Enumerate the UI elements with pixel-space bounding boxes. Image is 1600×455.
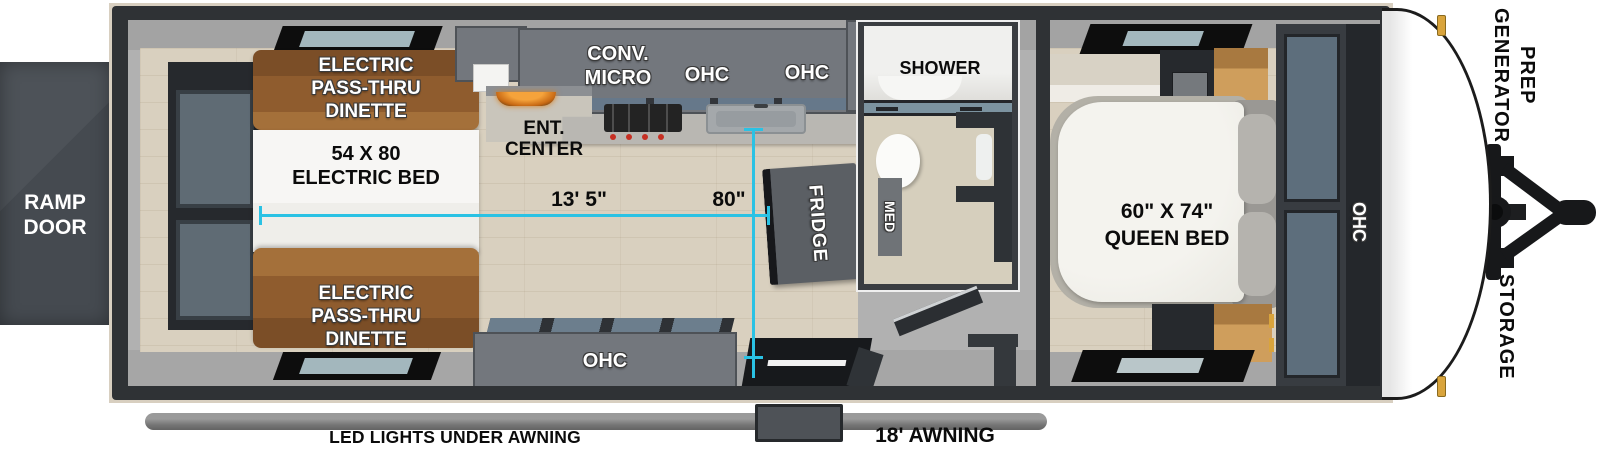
conv-micro-label: CONV. MICRO (570, 42, 666, 90)
ramp-interior-panel (168, 62, 262, 330)
wardrobe: OHC (1276, 24, 1380, 386)
storage-label: STORAGE (1494, 262, 1517, 392)
bathroom: SHOWER MED (856, 20, 1020, 292)
ramp-door-label: RAMP DOOR (0, 190, 110, 240)
med-label: MED (882, 201, 898, 232)
led-lights-label: LED LIGHTS UNDER AWNING (280, 427, 630, 448)
ohc-right-label: OHC (772, 62, 842, 85)
entry-wall-column (994, 334, 1016, 386)
headboard-wall (1050, 54, 1166, 102)
ramp-door: RAMP DOOR (0, 62, 110, 325)
ramp-window-top (176, 90, 254, 208)
dim-length-label: 13' 5" (529, 188, 629, 212)
vanity-counter-mid (956, 186, 1012, 202)
ent-center-label: ENT. CENTER (482, 118, 606, 160)
dim-width-label: 80" (699, 188, 759, 212)
med-cabinet: MED (878, 178, 902, 256)
wardrobe-glass-bottom (1284, 210, 1340, 378)
dinette-top-label: ELECTRIC PASS-THRU DINETTE (253, 54, 479, 123)
ohc-left-label: OHC (672, 64, 742, 87)
shower-pan (878, 76, 962, 100)
entry-step (755, 404, 843, 442)
ramp-window-bottom (176, 220, 254, 320)
dim-width-line (752, 130, 755, 378)
dim-length-tick-right (767, 206, 770, 225)
cap-latch-top (1437, 15, 1446, 36)
ohc-bottom-label: OHC (583, 350, 627, 373)
dinette-bottom-label: ELECTRIC PASS-THRU DINETTE (253, 282, 479, 351)
generator-prep-label: GENERATOR PREP (1488, 0, 1540, 150)
fireplace-glow (496, 92, 556, 106)
trailer-interior: ELECTRIC PASS-THRU DINETTE 54 X 80 ELECT… (128, 20, 1380, 386)
pillow-top (1238, 114, 1276, 204)
dim-length-line (261, 214, 770, 217)
cap-latch-bottom (1437, 376, 1446, 397)
entry-open-door (893, 286, 983, 336)
fridge-label: FRIDGE (803, 184, 830, 263)
stove (604, 104, 682, 132)
wardrobe-glass-top (1284, 34, 1340, 202)
rear-bottom-skylight (273, 352, 441, 380)
rear-top-skylight (273, 26, 442, 52)
dim-width-tick-top (744, 128, 763, 131)
dim-width-tick-bottom (744, 356, 763, 359)
wardrobe-ohc-label: OHC (1348, 182, 1369, 262)
floorplan: RAMP DOOR ELECTRIC PASS-THRU DINETTE (0, 0, 1600, 455)
bedroom-floor-skylight (1071, 350, 1255, 382)
front-cap (1382, 8, 1492, 400)
queen-bed-label: 60" X 74" QUEEN BED (1072, 198, 1262, 252)
stove-knobs (610, 134, 676, 142)
fridge: FRIDGE (762, 163, 864, 285)
vanity-sink (976, 134, 992, 180)
electric-bed-label: 54 X 80 ELECTRIC BED (253, 142, 479, 190)
bedroom-wall (1036, 20, 1050, 386)
shower-label: SHOWER (866, 58, 1012, 79)
awning-label: 18' AWNING (838, 424, 1032, 448)
dim-length-tick-left (259, 206, 262, 225)
overhead-cabinet-bottom: OHC (473, 332, 737, 386)
